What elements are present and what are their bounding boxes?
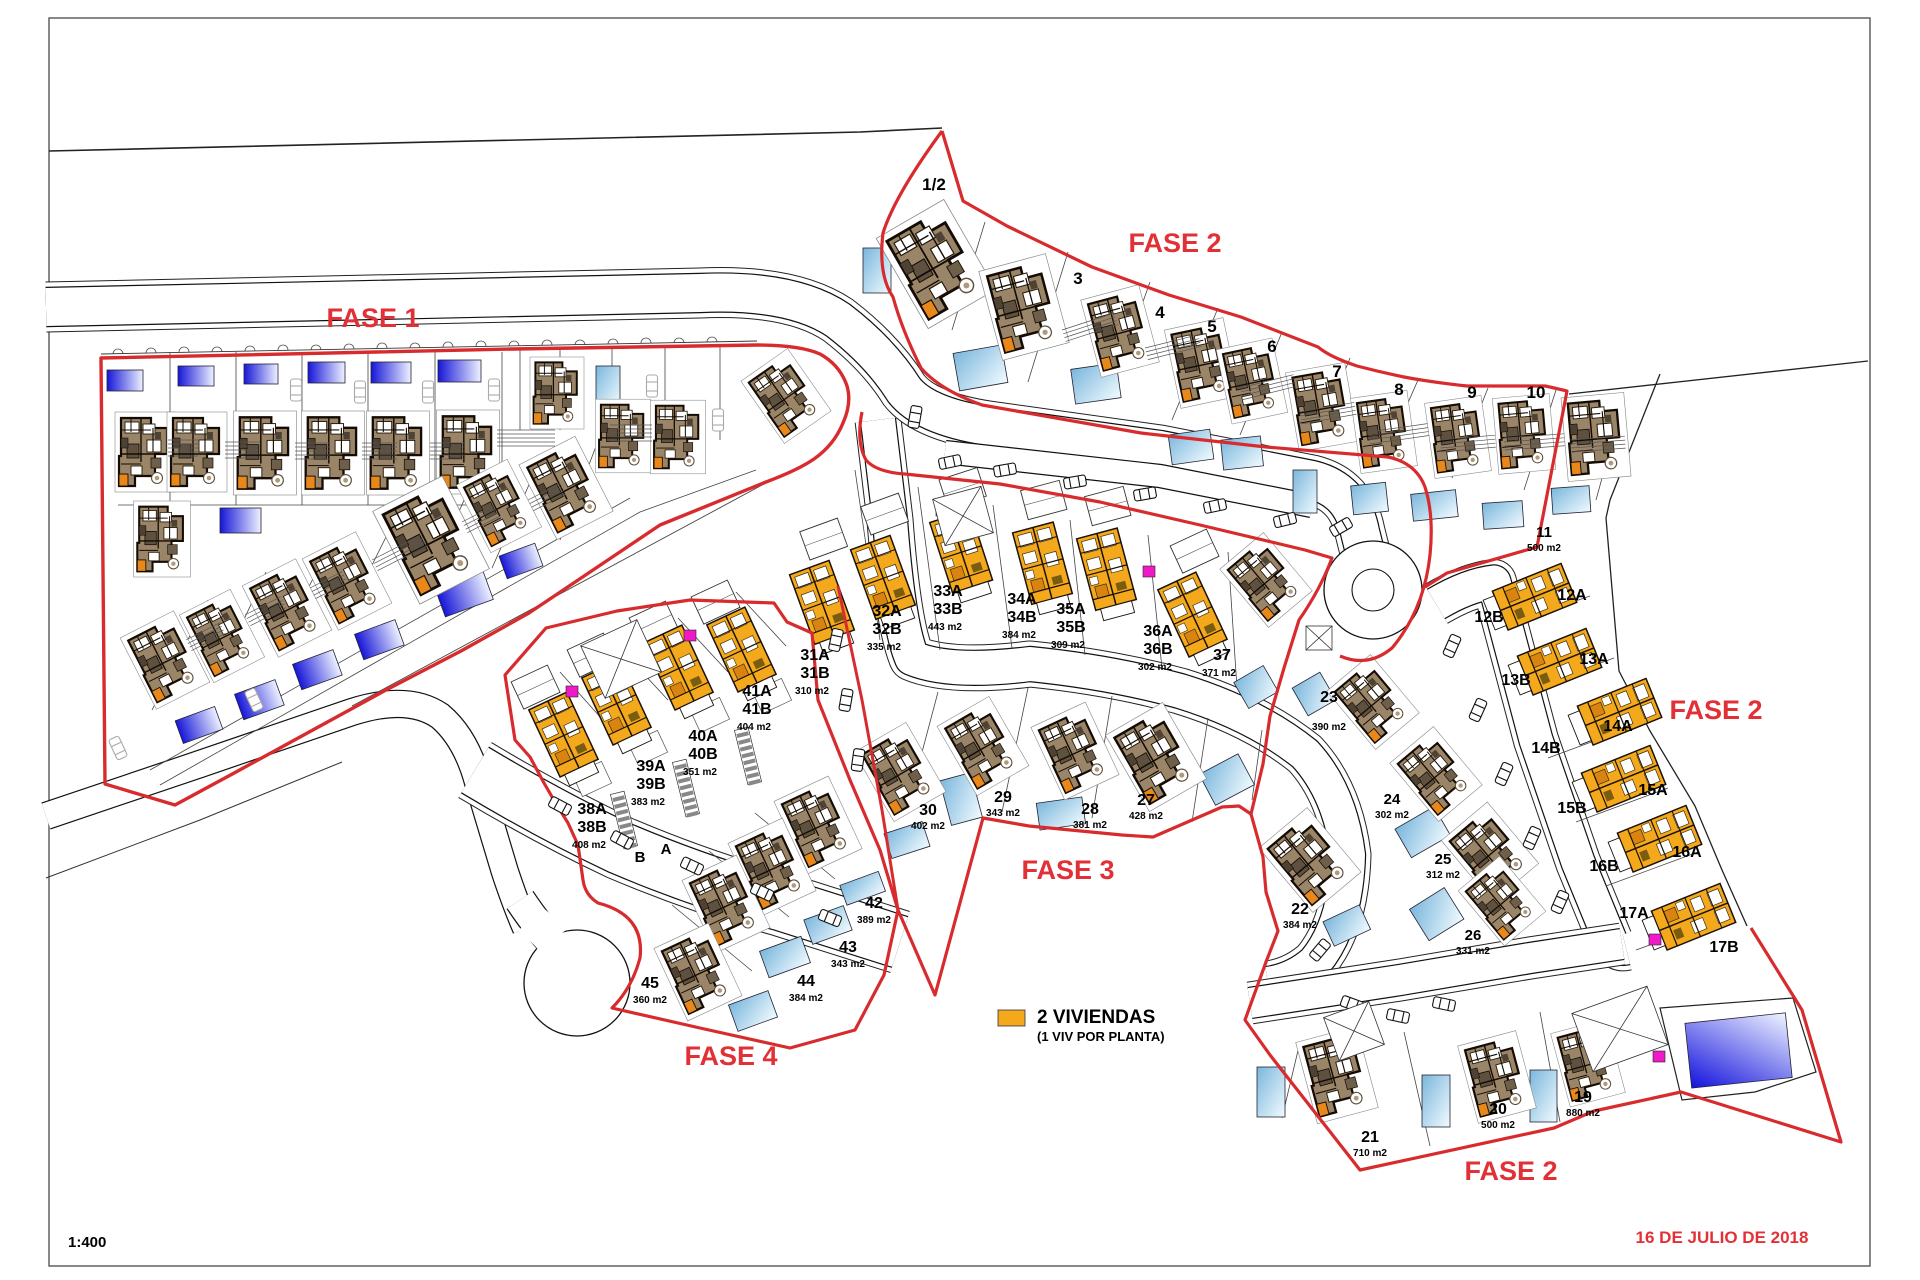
svg-text:12B: 12B xyxy=(1474,609,1503,626)
svg-text:302 m2: 302 m2 xyxy=(1375,810,1409,821)
svg-text:27: 27 xyxy=(1137,792,1155,809)
svg-text:383 m2: 383 m2 xyxy=(631,797,665,808)
svg-text:44: 44 xyxy=(797,973,815,990)
svg-text:15A: 15A xyxy=(1638,782,1668,799)
svg-text:16A: 16A xyxy=(1672,844,1702,861)
svg-text:390 m2: 390 m2 xyxy=(1312,722,1346,733)
svg-text:404 m2: 404 m2 xyxy=(737,722,771,733)
svg-text:40B: 40B xyxy=(688,746,717,763)
svg-text:36B: 36B xyxy=(1143,641,1172,658)
svg-text:20: 20 xyxy=(1489,1101,1507,1118)
svg-text:15B: 15B xyxy=(1557,800,1586,817)
svg-text:41B: 41B xyxy=(742,701,771,718)
svg-text:10: 10 xyxy=(1527,383,1546,402)
svg-text:FASE 2: FASE 2 xyxy=(1464,1156,1557,1186)
svg-text:35A: 35A xyxy=(1056,601,1086,618)
svg-text:31B: 31B xyxy=(800,665,829,682)
svg-text:500 m2: 500 m2 xyxy=(1481,1120,1515,1131)
svg-text:30: 30 xyxy=(919,802,937,819)
svg-text:3: 3 xyxy=(1073,269,1082,288)
svg-text:331 m2: 331 m2 xyxy=(1456,946,1490,957)
svg-text:39B: 39B xyxy=(636,776,665,793)
svg-text:710 m2: 710 m2 xyxy=(1353,1148,1387,1159)
svg-text:34A: 34A xyxy=(1007,591,1037,608)
svg-text:5: 5 xyxy=(1207,317,1216,336)
svg-text:35B: 35B xyxy=(1056,619,1085,636)
svg-text:B: B xyxy=(635,849,646,866)
svg-text:428 m2: 428 m2 xyxy=(1129,811,1163,822)
svg-text:33B: 33B xyxy=(933,601,962,618)
svg-text:4: 4 xyxy=(1155,303,1165,322)
svg-text:41A: 41A xyxy=(742,683,772,700)
svg-text:880 m2: 880 m2 xyxy=(1566,1108,1600,1119)
svg-text:1/2: 1/2 xyxy=(922,175,946,194)
svg-text:16 DE JULIO DE 2018: 16 DE JULIO DE 2018 xyxy=(1636,1228,1809,1247)
svg-text:31A: 31A xyxy=(800,647,830,664)
svg-text:40A: 40A xyxy=(688,728,718,745)
svg-text:17A: 17A xyxy=(1619,905,1649,922)
svg-text:17B: 17B xyxy=(1709,939,1738,956)
svg-text:34B: 34B xyxy=(1007,609,1036,626)
svg-text:302 m2: 302 m2 xyxy=(1138,662,1172,673)
svg-text:FASE 2: FASE 2 xyxy=(1128,228,1221,258)
svg-text:19: 19 xyxy=(1574,1089,1592,1106)
svg-text:343 m2: 343 m2 xyxy=(986,808,1020,819)
svg-text:360 m2: 360 m2 xyxy=(633,995,667,1006)
svg-text:343 m2: 343 m2 xyxy=(831,959,865,970)
svg-text:28: 28 xyxy=(1081,801,1099,818)
svg-text:FASE 2: FASE 2 xyxy=(1669,695,1762,725)
svg-text:13A: 13A xyxy=(1579,651,1609,668)
svg-text:29: 29 xyxy=(994,789,1012,806)
svg-text:FASE 1: FASE 1 xyxy=(326,303,419,333)
svg-text:32B: 32B xyxy=(872,621,901,638)
svg-text:12A: 12A xyxy=(1557,587,1587,604)
svg-text:FASE 3: FASE 3 xyxy=(1021,855,1114,885)
svg-text:45: 45 xyxy=(641,975,659,992)
svg-text:389 m2: 389 m2 xyxy=(857,915,891,926)
svg-text:39A: 39A xyxy=(636,758,666,775)
svg-text:26: 26 xyxy=(1465,927,1482,944)
svg-text:11: 11 xyxy=(1536,524,1552,541)
svg-text:335 m2: 335 m2 xyxy=(867,642,901,653)
svg-text:9: 9 xyxy=(1467,383,1476,402)
svg-text:312 m2: 312 m2 xyxy=(1426,870,1460,881)
svg-text:38B: 38B xyxy=(577,819,606,836)
svg-text:(1 VIV POR PLANTA): (1 VIV POR PLANTA) xyxy=(1037,1029,1165,1044)
svg-text:37: 37 xyxy=(1213,647,1231,664)
svg-text:351 m2: 351 m2 xyxy=(683,767,717,778)
svg-text:14B: 14B xyxy=(1531,740,1560,757)
svg-text:381 m2: 381 m2 xyxy=(1073,820,1107,831)
svg-text:21: 21 xyxy=(1361,1129,1379,1146)
svg-text:38A: 38A xyxy=(577,801,607,818)
svg-text:FASE 4: FASE 4 xyxy=(684,1041,777,1071)
svg-text:25: 25 xyxy=(1435,851,1452,868)
svg-text:443 m2: 443 m2 xyxy=(928,622,962,633)
svg-text:42: 42 xyxy=(865,895,883,912)
svg-text:2 VIVIENDAS: 2 VIVIENDAS xyxy=(1037,1007,1155,1028)
svg-text:402 m2: 402 m2 xyxy=(911,821,945,832)
svg-text:384 m2: 384 m2 xyxy=(789,993,823,1004)
svg-text:16B: 16B xyxy=(1589,858,1618,875)
svg-text:36A: 36A xyxy=(1143,623,1173,640)
svg-text:A: A xyxy=(661,841,672,858)
svg-text:384 m2: 384 m2 xyxy=(1283,920,1317,931)
svg-text:1:400: 1:400 xyxy=(68,1234,106,1251)
svg-text:33A: 33A xyxy=(933,583,963,600)
svg-text:22: 22 xyxy=(1291,901,1309,918)
svg-text:24: 24 xyxy=(1384,791,1401,808)
svg-text:384 m2: 384 m2 xyxy=(1002,630,1036,641)
svg-text:6: 6 xyxy=(1267,337,1276,356)
svg-text:43: 43 xyxy=(839,939,857,956)
svg-text:310 m2: 310 m2 xyxy=(795,686,829,697)
svg-text:14A: 14A xyxy=(1603,718,1633,735)
svg-text:13B: 13B xyxy=(1501,672,1530,689)
svg-text:32A: 32A xyxy=(872,603,902,620)
svg-text:7: 7 xyxy=(1332,362,1341,381)
svg-text:309 m2: 309 m2 xyxy=(1051,640,1085,651)
svg-text:408 m2: 408 m2 xyxy=(572,840,606,851)
svg-text:371 m2: 371 m2 xyxy=(1202,668,1236,679)
svg-text:8: 8 xyxy=(1394,380,1403,399)
svg-text:23: 23 xyxy=(1320,689,1338,706)
svg-text:500 m2: 500 m2 xyxy=(1527,543,1561,554)
